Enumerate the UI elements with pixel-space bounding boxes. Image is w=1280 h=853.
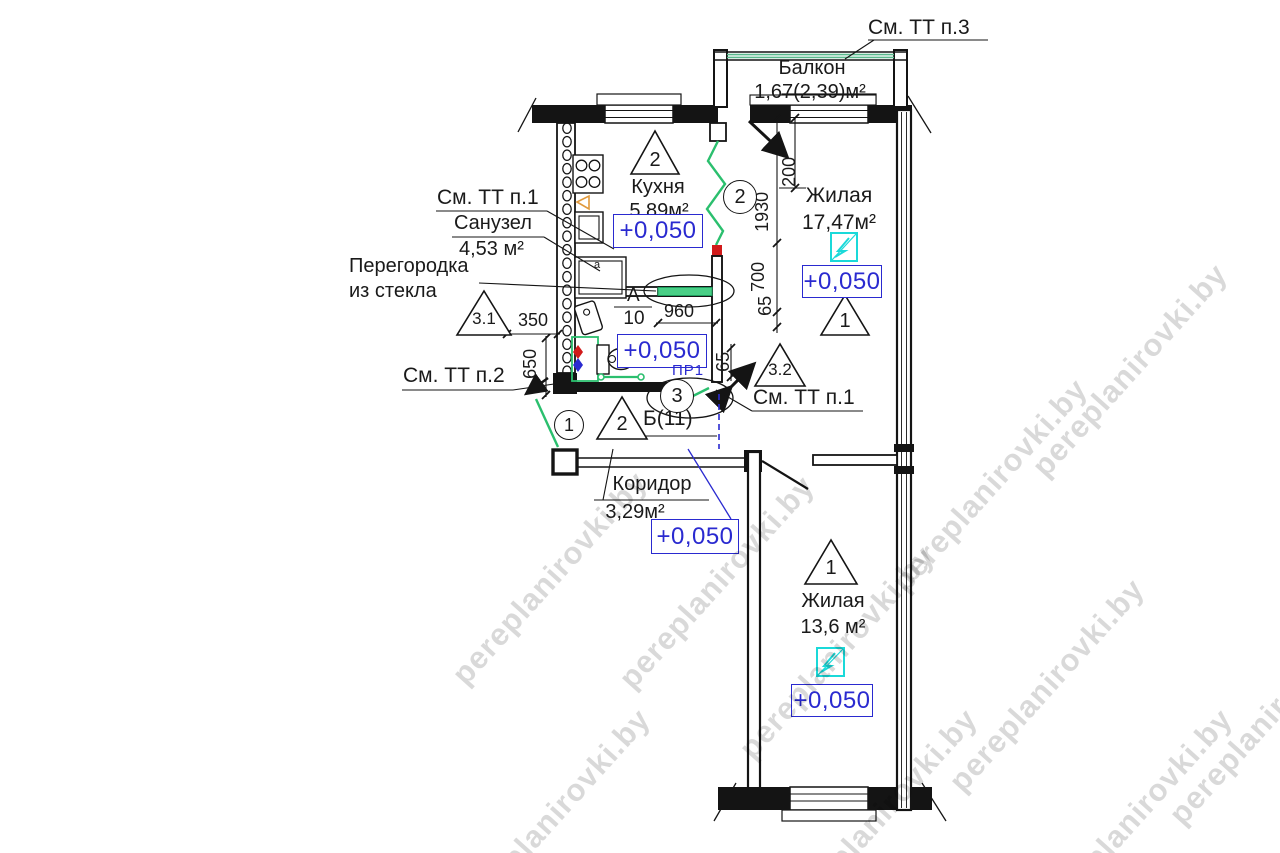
vent-icon	[577, 196, 589, 209]
dim-200: 200	[780, 150, 800, 194]
bathroom-area: 4,53 м²	[459, 238, 524, 260]
fixture-tag-a: а	[594, 259, 600, 271]
callout-tt1-left: См. ТТ п.1	[437, 186, 539, 209]
bathroom-name: Санузел	[454, 212, 532, 234]
triangle-3-2-number: 3.2	[760, 361, 800, 380]
callout-partition-line2: из стекла	[349, 280, 437, 302]
central-partition	[707, 123, 726, 382]
circle-marker-mid: 3	[660, 379, 694, 413]
living-bottom-window	[782, 787, 876, 821]
callout-partition-line1: Перегородка	[349, 255, 469, 277]
circle-marker-entrance: 1	[554, 410, 584, 440]
circle-marker-top: 2	[723, 180, 757, 214]
kitchen-sink-icon	[575, 212, 603, 243]
towel-rail-icon	[598, 374, 644, 380]
callout-tt1-right: См. ТТ п.1	[753, 386, 855, 409]
dim-960: 960	[654, 302, 704, 322]
washbasin-icon	[574, 300, 603, 335]
callout-tt2: См. ТТ п.2	[403, 364, 505, 387]
plan-linework	[0, 0, 1280, 853]
living-top-bottom-wall	[762, 455, 897, 489]
dim-65-b: 65	[714, 347, 734, 377]
opening-tag-pr1: ПР1	[672, 363, 704, 380]
door-tag-letter: А	[627, 286, 640, 307]
living-top-name: Жилая	[797, 184, 881, 207]
level-mark-living-bottom: +0,050	[791, 684, 873, 717]
triangle-living-top-number: 1	[835, 310, 855, 332]
balcony-name: Балкон	[770, 57, 854, 79]
living-bottom-name: Жилая	[797, 590, 869, 612]
corridor-name: Коридор	[596, 473, 708, 495]
dim-650: 650	[521, 342, 541, 386]
floor-plan-canvas: См. ТТ п.3 См. ТТ п.1 См. ТТ п.2 См. ТТ …	[0, 0, 1280, 853]
corridor-bottom-wall	[553, 450, 762, 474]
living-bottom-area: 13,6 м²	[789, 616, 877, 638]
kitchen-window	[597, 94, 681, 123]
level-mark-corridor: +0,050	[651, 519, 739, 554]
door-tag-number: 10	[616, 309, 652, 330]
level-mark-living-top: +0,050	[802, 265, 882, 298]
dim-65-a: 65	[756, 291, 776, 321]
living-top-area: 17,47м²	[788, 211, 890, 234]
balcony-area: 1,67(2,39)м²	[746, 81, 874, 103]
triangle-corridor-number: 2	[612, 413, 632, 435]
electric-icon-living-bottom	[817, 648, 844, 676]
triangle-3-1-number: 3.1	[464, 310, 504, 329]
shower-tray-icon	[575, 257, 626, 298]
triangle-living-bottom-number: 1	[821, 557, 841, 579]
level-mark-kitchen: +0,050	[613, 214, 703, 248]
dim-350: 350	[511, 311, 555, 331]
callout-tt3: См. ТТ п.3	[868, 16, 970, 39]
stove-icon	[573, 155, 603, 193]
triangle-kitchen-number: 2	[645, 149, 665, 171]
electric-icon-living-top	[831, 233, 857, 261]
kitchen-name: Кухня	[622, 176, 694, 198]
balcony-door	[749, 121, 783, 153]
